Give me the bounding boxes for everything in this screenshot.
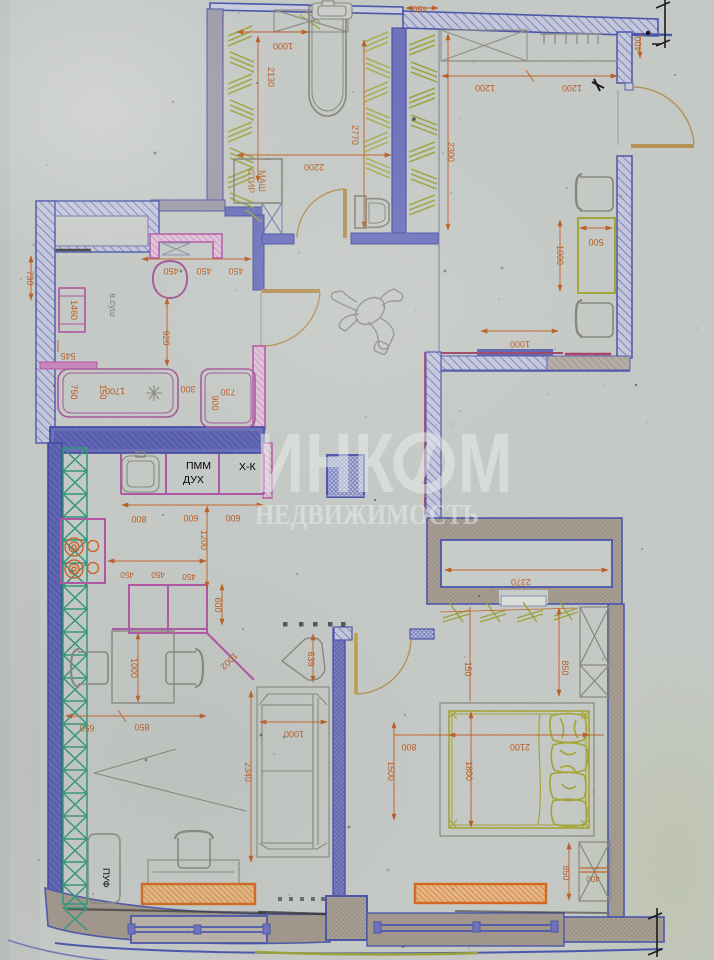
- svg-text:400: 400: [633, 36, 643, 51]
- svg-text:850: 850: [560, 660, 570, 675]
- svg-text:ДУХ: ДУХ: [183, 474, 204, 486]
- svg-text:2370: 2370: [511, 577, 531, 587]
- svg-text:НЕДВИЖИМОСТЬ: НЕДВИЖИМОСТЬ: [255, 500, 479, 531]
- svg-text:150: 150: [463, 661, 473, 676]
- svg-text:600: 600: [225, 513, 240, 523]
- svg-text:1460: 1460: [69, 300, 79, 320]
- svg-text:750: 750: [69, 384, 79, 399]
- svg-text:1000: 1000: [273, 41, 293, 51]
- svg-text:450: 450: [412, 4, 427, 14]
- svg-text:600: 600: [183, 513, 198, 523]
- svg-text:1700: 1700: [105, 386, 125, 396]
- svg-text:800: 800: [131, 514, 146, 524]
- svg-text:1200: 1200: [562, 83, 582, 93]
- svg-text:2100: 2100: [510, 742, 530, 752]
- svg-text:730: 730: [25, 270, 35, 285]
- svg-text:400: 400: [586, 874, 600, 883]
- svg-text:1800: 1800: [464, 761, 474, 781]
- svg-text:ПММ: ПММ: [186, 460, 211, 472]
- svg-text:850: 850: [561, 865, 571, 880]
- svg-text:1200: 1200: [475, 83, 495, 93]
- svg-text:545: 545: [60, 351, 75, 361]
